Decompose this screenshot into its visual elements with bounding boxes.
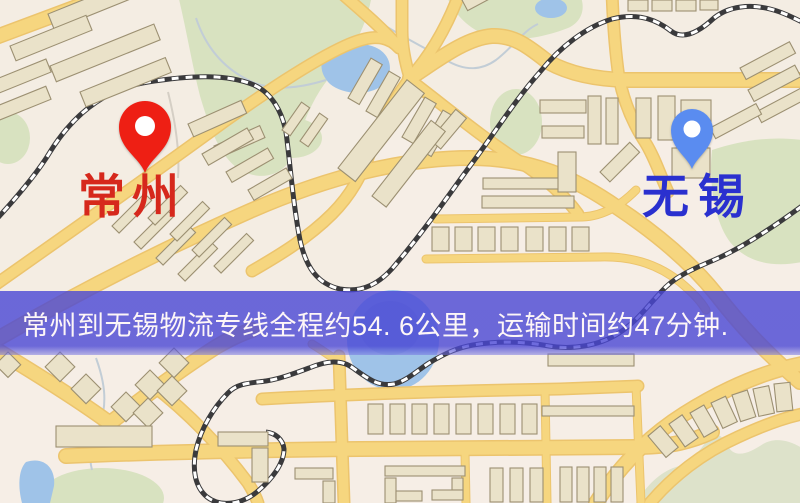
map-canvas: 常州 无锡 常州到无锡物流专线全程约54. 6公里，运输时间约47分钟.	[0, 0, 800, 503]
origin-city-label: 常州	[78, 173, 186, 220]
destination-city-label: 无锡	[642, 173, 754, 220]
info-banner: 常州到无锡物流专线全程约54. 6公里，运输时间约47分钟.	[0, 291, 800, 355]
map-graphics	[0, 0, 800, 503]
banner-text: 常州到无锡物流专线全程约54. 6公里，运输时间约47分钟.	[22, 304, 729, 343]
destination-location-pin-icon	[669, 107, 715, 176]
origin-location-pin-icon	[116, 99, 174, 180]
